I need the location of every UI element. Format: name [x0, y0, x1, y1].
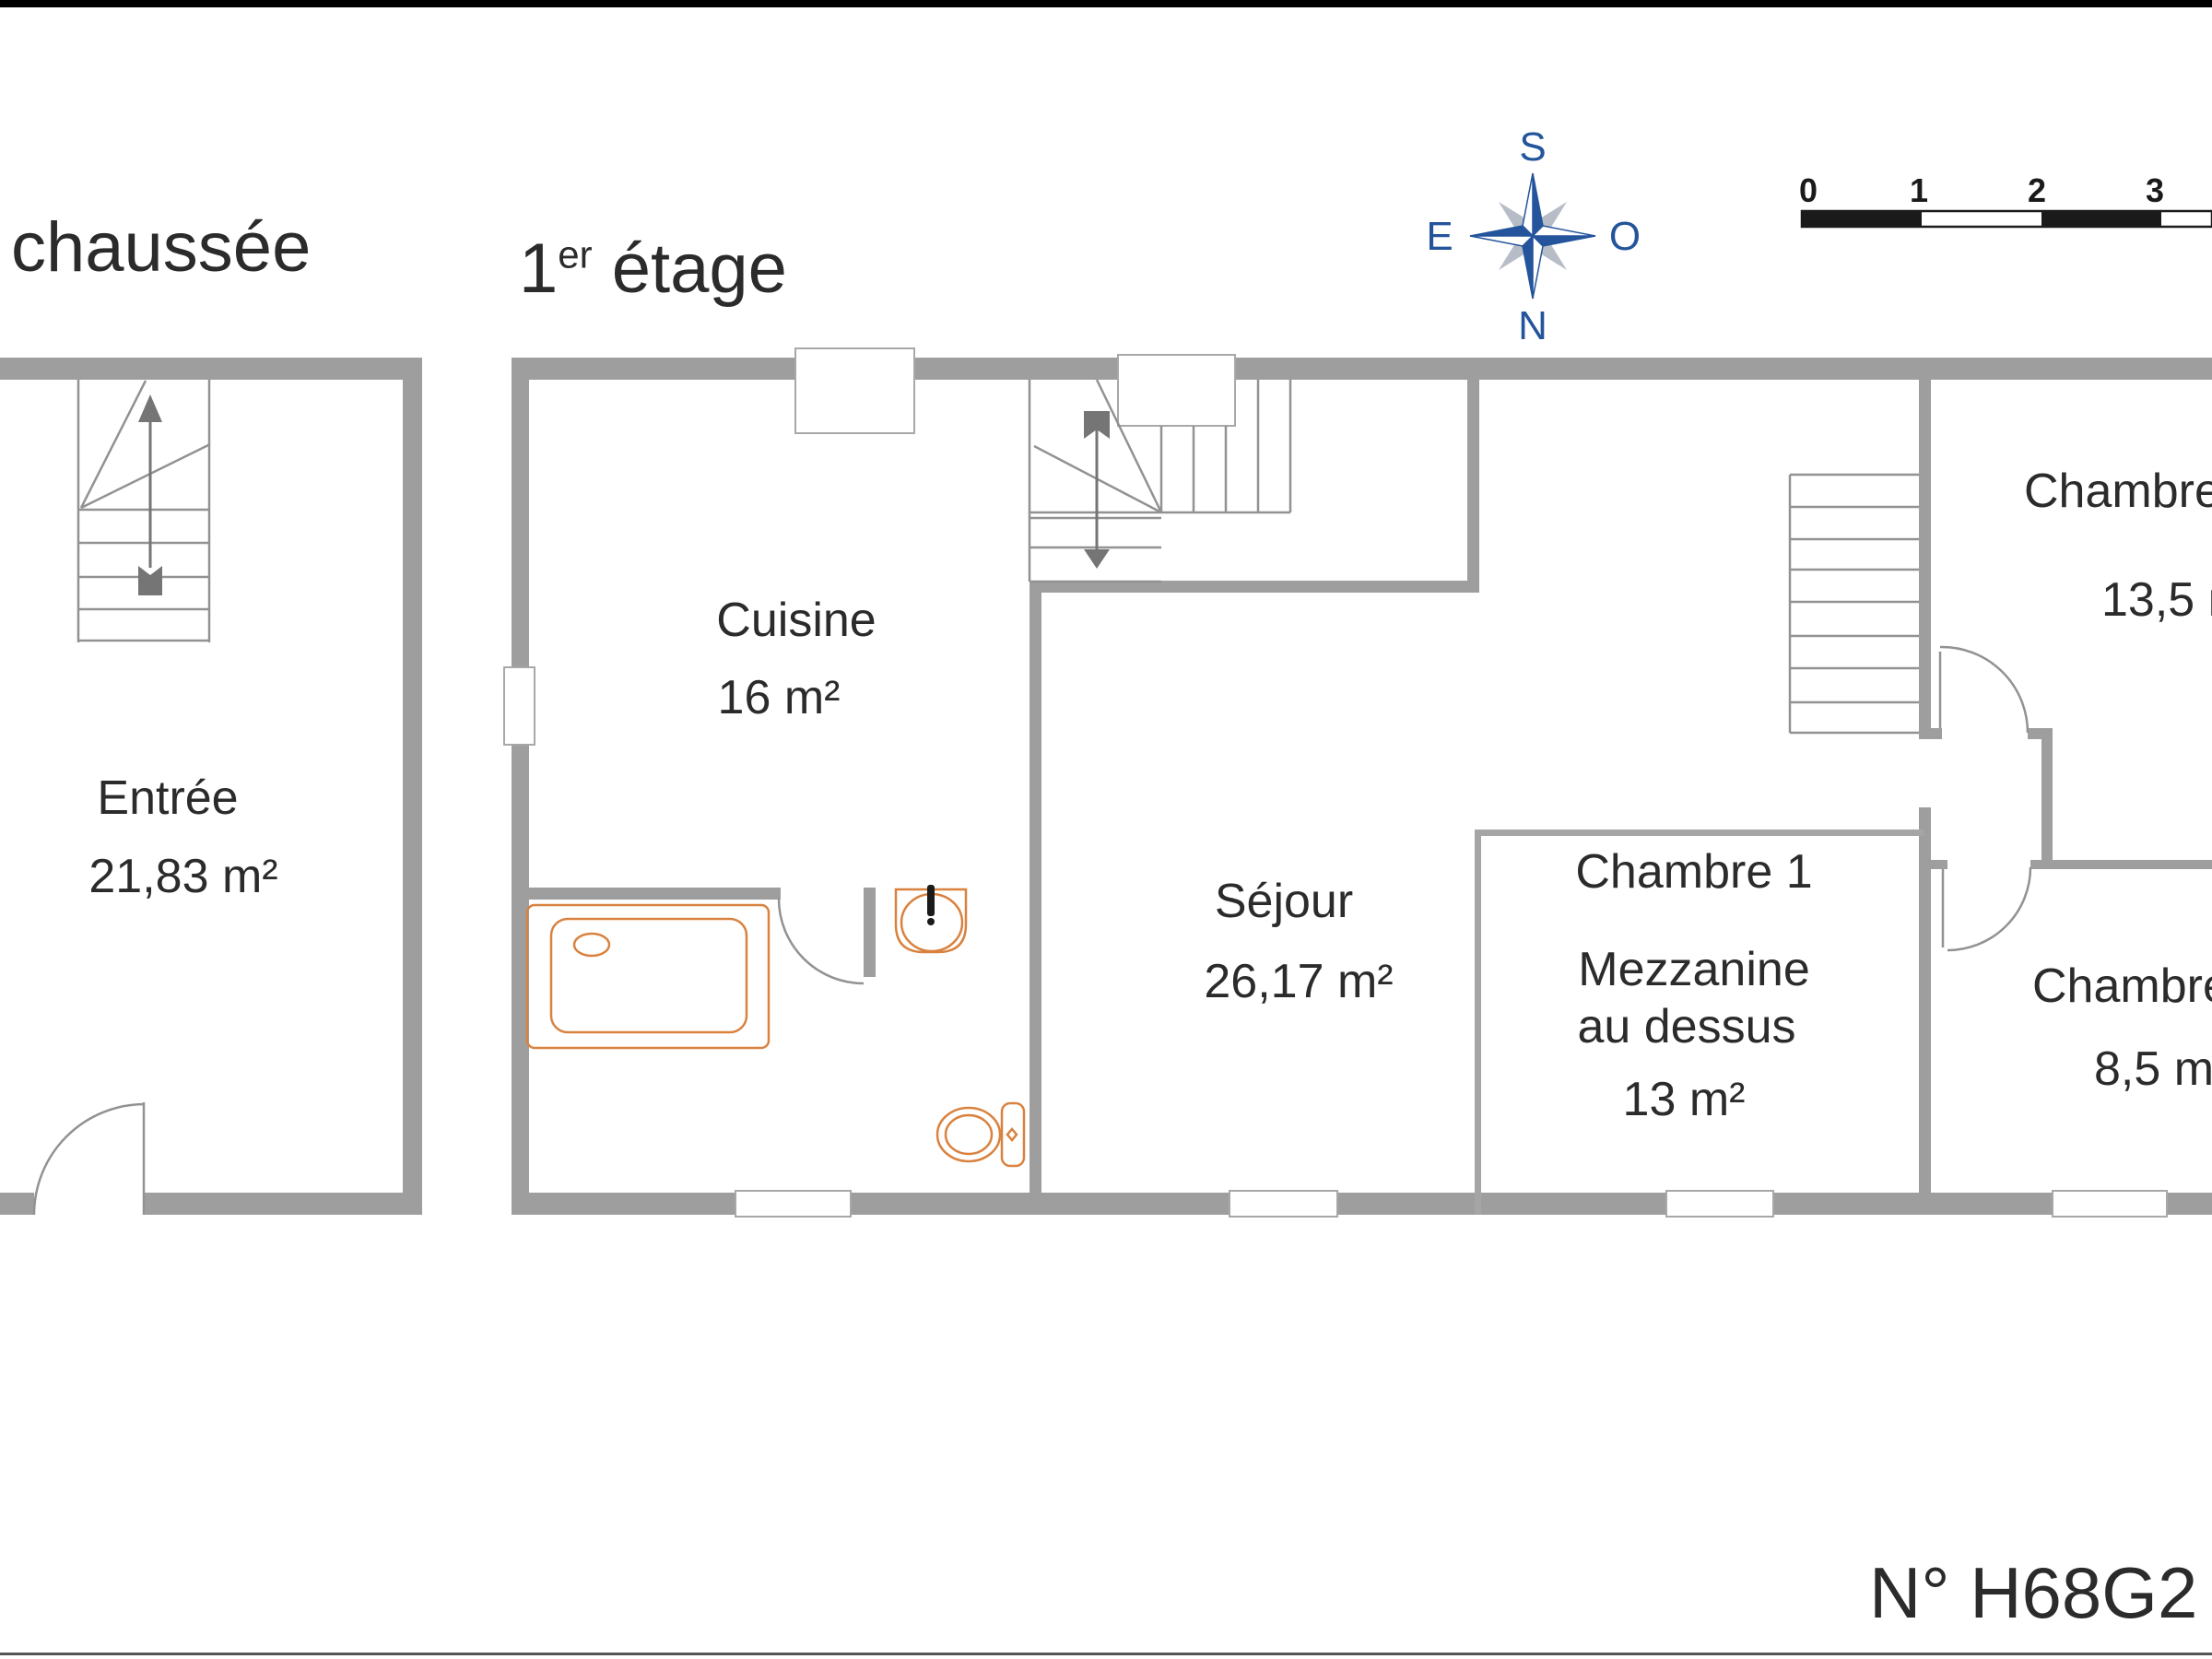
- room-label-sejour: Séjour: [1215, 874, 1353, 929]
- compass-south-label: S: [1519, 124, 1546, 171]
- room-label-chambre1: Chambre 1: [1575, 844, 1812, 900]
- room-label-cuisine: Cuisine: [716, 593, 876, 648]
- bottom-border-line: [0, 1653, 2212, 1655]
- room-area-sejour: 26,17 m²: [1204, 954, 1393, 1009]
- compass-north-label: N: [1518, 303, 1547, 349]
- room-label-entree: Entrée: [97, 771, 238, 826]
- scale-tick-1: 1: [1910, 171, 1928, 210]
- plan-reference-number: N° H68G2: [1869, 1551, 2197, 1635]
- room-area-chambre1: 13 m²: [1623, 1072, 1746, 1127]
- first-floor-title-sup: er: [558, 233, 592, 276]
- first-floor-title-num: 1: [519, 229, 558, 308]
- room-area-entree: 21,83 m²: [88, 849, 277, 904]
- bathtub-icon: [527, 905, 769, 1048]
- room-area-cuisine: 16 m²: [718, 670, 841, 725]
- ground-floor-title: chaussée: [11, 207, 311, 288]
- ground-floor-stairs-icon: [78, 380, 210, 642]
- bedroom-door-icon: [1943, 867, 2030, 950]
- room-label-chambre-bottom-right: Chambre: [2032, 959, 2212, 1014]
- scale-tick-0: 0: [1799, 171, 1818, 210]
- side-stairs-icon: [1790, 475, 1919, 733]
- compass-east-label: E: [1426, 214, 1453, 260]
- entry-door-icon: [34, 1102, 145, 1215]
- scale-bar: [1802, 211, 2212, 227]
- scale-tick-3: 3: [2146, 171, 2164, 210]
- hall-door-icon: [1940, 647, 2028, 733]
- floor-plan-canvas: chaussée 1er étage Entrée 21,83 m² Cuisi…: [0, 0, 2212, 1659]
- sink-icon: [896, 885, 966, 952]
- bathroom-door-icon: [779, 899, 864, 983]
- floor-plan-drawing: [0, 0, 2212, 1659]
- toilet-icon: [937, 1103, 1024, 1166]
- room-label-chambre-top-right: Chambre: [2024, 464, 2212, 519]
- room-area-chambre-bottom-right: 8,5 m²: [2094, 1041, 2212, 1097]
- room-area-chambre-top-right: 13,5 m²: [2101, 572, 2212, 628]
- first-floor-title-rest: étage: [593, 229, 787, 308]
- room-note1-chambre1: Mezzanine: [1578, 942, 1809, 997]
- scale-tick-2: 2: [2028, 171, 2046, 210]
- room-note2-chambre1: au dessus: [1577, 999, 1795, 1054]
- windows: [504, 348, 2167, 1217]
- first-floor-title: 1er étage: [519, 229, 787, 309]
- compass-west-label: O: [1609, 214, 1641, 260]
- compass-rose-icon: [1470, 173, 1595, 299]
- first-floor-walls: [512, 358, 2212, 1215]
